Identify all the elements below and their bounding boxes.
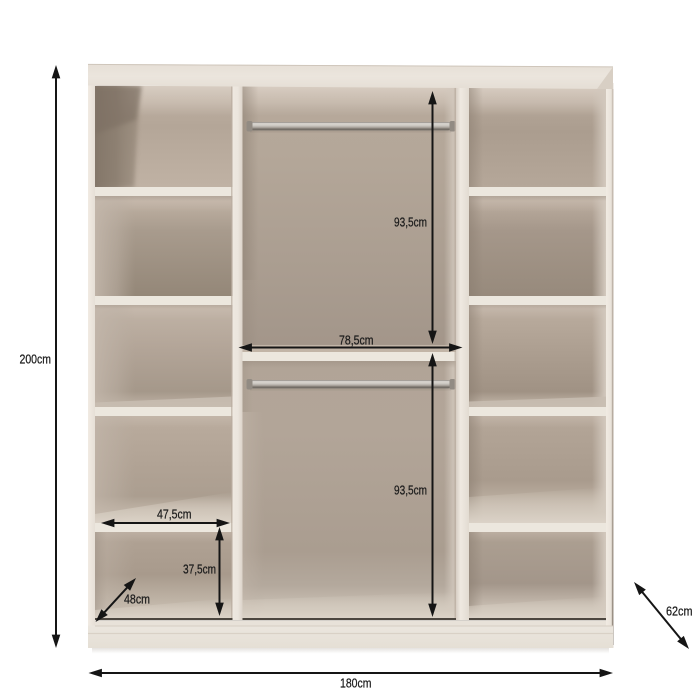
svg-text:37,5cm: 37,5cm bbox=[183, 562, 216, 577]
svg-text:78,5cm: 78,5cm bbox=[339, 333, 374, 348]
svg-text:93,5cm: 93,5cm bbox=[394, 483, 427, 498]
svg-text:48cm: 48cm bbox=[124, 592, 150, 607]
svg-text:180cm: 180cm bbox=[340, 676, 372, 691]
svg-text:200cm: 200cm bbox=[20, 352, 52, 367]
svg-text:93,5cm: 93,5cm bbox=[394, 215, 427, 230]
svg-text:62cm: 62cm bbox=[666, 604, 693, 619]
svg-text:47,5cm: 47,5cm bbox=[157, 507, 192, 522]
